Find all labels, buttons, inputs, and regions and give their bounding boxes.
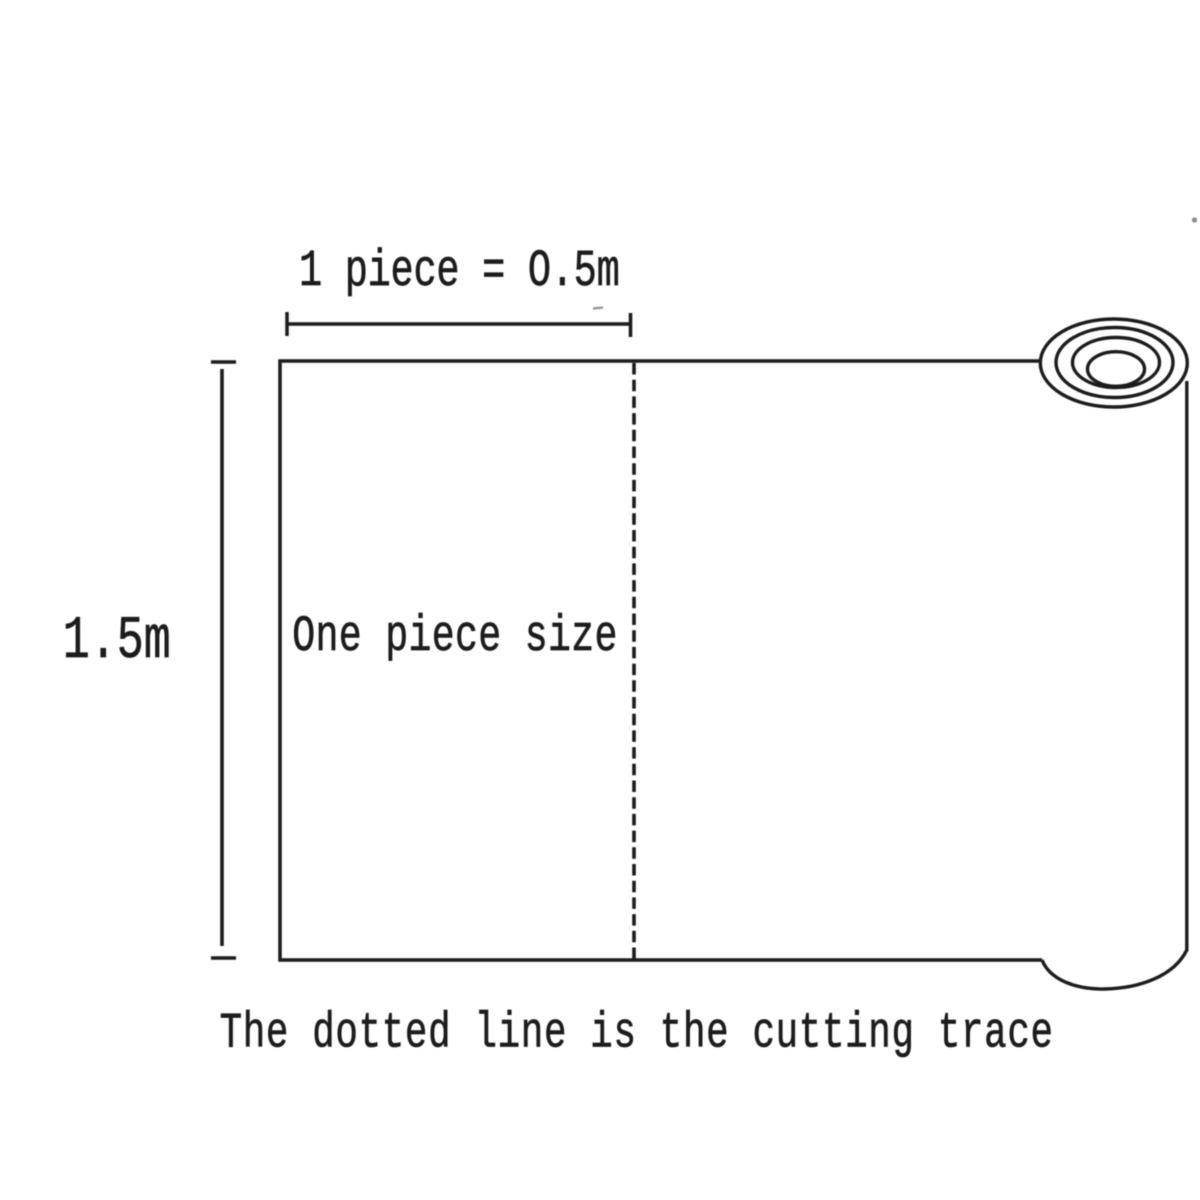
svg-text:1.5m: 1.5m [63, 607, 171, 675]
svg-text:1 piece = O.5m: 1 piece = O.5m [299, 242, 620, 301]
svg-text:One piece size: One piece size [292, 607, 617, 666]
svg-text:The dotted line is the cutting: The dotted line is the cutting trace [220, 1006, 1053, 1063]
